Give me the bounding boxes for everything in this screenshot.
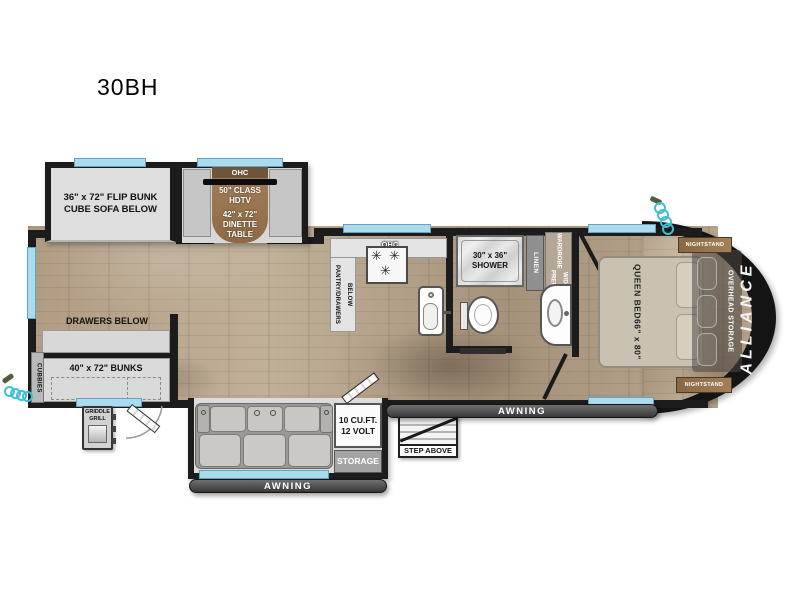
nightstand-bottom-label: NIGHTSTAND [685,382,724,389]
drawers-below-label: DRAWERS BELOW [52,316,162,327]
sink-basin [423,303,438,330]
bunks-label: 40" x 72" BUNKS [43,363,169,374]
cooktop: ✳ ✳ ✳ [366,246,408,284]
cord-plug [2,373,15,384]
griddle-knob [112,414,116,420]
awning-left-label: AWNING [264,481,312,492]
tv-label-1: 50" CLASS [219,186,261,196]
refrigerator: 10 CU.FT. 12 VOLT [334,403,382,448]
bed-label: QUEEN BED 66" x 80" [598,256,676,368]
table-label-2: DINETTE [223,220,257,230]
griddle-grill: GRIDDLE GRILL [82,406,113,450]
bunk-outline-divider [127,377,128,400]
flip-bunk-label-2: CUBE SOFA BELOW [64,204,157,216]
bath-pocket-door [460,348,506,354]
cup-holder-icon [201,410,206,415]
dinette-labels: 50" CLASS HDTV 42" x 72" DINETTE TABLE [212,186,268,240]
sofa-armrest [197,405,210,433]
table-label-3: TABLE [227,230,253,240]
dinette-ohc: OHC [212,167,268,178]
sofa-back-cushion [247,406,283,432]
brand-wordmark: ALLIANCE [724,229,770,406]
kitchen-sink-cabinet [418,286,444,336]
bed-label-1: QUEEN BED [631,264,644,319]
griddle-label-2: GRILL [84,416,111,423]
sofa-back-cushion [210,406,246,432]
sofa-armrest [320,405,333,433]
griddle-label-1: GRIDDLE [84,409,111,416]
pantry-label: PANTRY/DRAWERS BELOW [331,258,355,331]
shower: 30" x 36" SHOWER [456,235,524,287]
griddle-plate [88,425,107,443]
window-rear [27,247,36,319]
storage-compartment: STORAGE [334,450,382,473]
drawers-cabinet [42,330,170,353]
wall-bunkroom [170,314,178,408]
burner-icon: ✳ [389,248,400,264]
sink-handle [443,311,451,314]
fridge-label-1: 10 CU.FT. [339,415,377,426]
fridge-label-2: 12 VOLT [341,426,375,437]
bunk-outline [51,377,161,400]
window-bedroom-top [588,224,656,233]
tv-label-2: HDTV [229,196,251,206]
vanity [540,284,572,346]
window-kitchen [343,224,431,233]
pantry: PANTRY/DRAWERS BELOW [330,257,356,332]
model-title: 30BH [97,74,159,101]
dinette-ohc-label: OHC [232,168,249,177]
sofa-seat-cushion [288,434,331,467]
cabinet-door [697,295,717,328]
brand-text: ALLIANCE [738,261,756,374]
shower-label-1: 30" x 36" [473,251,507,261]
entry-steps: STEP ABOVE [398,414,458,458]
power-cord-icon [648,196,680,234]
window-sofa-slide [199,470,329,479]
awning-left-bar: AWNING [189,479,387,493]
linen-cabinet: LINEN [526,235,544,291]
storage-label: STORAGE [337,456,379,467]
linen-label: LINEN [531,252,539,274]
toilet [467,296,499,334]
wardrobe: WARDROBE W/D PREP [545,232,572,288]
shower-label-2: SHOWER [472,261,508,271]
awning-right-bar: AWNING [386,404,658,418]
griddle-knob [112,426,116,432]
bunks: 40" x 72" BUNKS [42,358,170,402]
burner-icon: ✳ [371,248,382,264]
faucet-icon [428,292,434,298]
vanity-faucet-icon [564,311,569,316]
griddle-knob [112,438,116,444]
step-above-label: STEP ABOVE [404,446,452,455]
cabinet-door [697,257,717,290]
window-bunk-slide [74,158,146,167]
window-dinette-slide [197,158,283,167]
cup-holder-icon [324,410,329,415]
bed-label-2: 66" x 80" [631,319,644,360]
cabinet-door [697,333,717,366]
cup-holder-icon [254,410,260,416]
sofa-seat-cushion [243,434,286,467]
cup-holder-icon [270,410,276,416]
burner-icon: ✳ [380,263,391,279]
toilet-bowl [474,304,492,326]
sofa-back-cushion [284,406,320,432]
step-above-box: STEP ABOVE [400,444,456,456]
awning-right-label: AWNING [498,406,546,417]
sofa [195,403,333,469]
tv-bar [203,179,277,185]
table-label-1: 42" x 72" [223,210,257,220]
wardrobe-label-1: WARDROBE [553,233,565,269]
flip-bunk-label-1: 36" x 72" FLIP BUNK [64,192,158,204]
flip-bunk-slide: 36" x 72" FLIP BUNK CUBE SOFA BELOW [45,162,176,242]
cubbies-label: CUBBIES [34,363,42,393]
step-line [400,424,456,426]
wall-bath-left [446,233,453,353]
sofa-seat-cushion [199,434,241,467]
vanity-sink [547,299,563,327]
floorplan-canvas: 30BH ALLIANCE DRAWERS BELOW 40" x 72" BU… [0,0,800,600]
nightstand-top-label: NIGHTSTAND [686,242,725,249]
wall-bath-right [572,233,579,357]
power-cord-icon [2,374,34,406]
